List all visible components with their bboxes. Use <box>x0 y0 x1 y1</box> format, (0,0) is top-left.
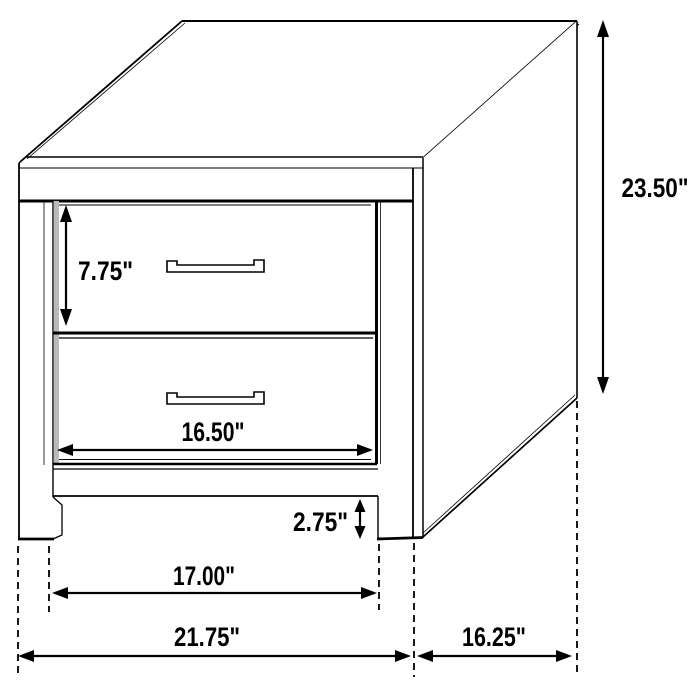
arrowhead-left <box>57 444 73 456</box>
dimension-inner-width: 17.00" <box>52 561 377 599</box>
arrowhead-right <box>395 650 411 662</box>
arrowhead-right <box>556 650 572 662</box>
arrowhead-down <box>355 526 366 539</box>
nightstand-dimension-diagram: 7.75" 23.50" 16.50" 2.75" 17.00" 21.75" <box>0 0 700 700</box>
dimension-overall-height-label: 23.50" <box>622 173 689 203</box>
arrowhead-left <box>52 587 68 599</box>
arrowhead-up <box>355 499 366 512</box>
dimension-overall-width-label: 21.75" <box>174 622 240 652</box>
arrowhead-right <box>357 444 373 456</box>
dimension-overall-width: 21.75" <box>18 622 411 662</box>
top-left-corner-bevel <box>19 157 26 163</box>
drawer-handle-icon <box>167 392 264 404</box>
dimension-depth-label: 16.25" <box>462 622 526 652</box>
dimension-drawer-height: 7.75" <box>60 205 133 326</box>
arrowhead-right <box>361 587 377 599</box>
arrowhead-left <box>417 650 433 662</box>
diagram-canvas: 7.75" 23.50" 16.50" 2.75" 17.00" 21.75" <box>0 0 700 700</box>
arrowhead-down <box>597 377 609 394</box>
right-leg-bottom <box>377 538 423 540</box>
left-leg-inner-face <box>53 497 62 539</box>
front-frame <box>19 163 413 539</box>
drawer-handle-icon <box>167 260 264 272</box>
dimension-base-clearance-label: 2.75" <box>293 507 348 537</box>
dimension-opening-width-label: 16.50" <box>182 417 245 447</box>
dimension-overall-height: 23.50" <box>597 20 689 394</box>
dimension-drawer-height-label: 7.75" <box>78 256 133 286</box>
arrowhead-up <box>60 205 72 222</box>
dimension-depth: 16.25" <box>417 622 572 662</box>
arrowhead-left <box>18 650 34 662</box>
arrowhead-down <box>60 309 72 326</box>
arrowhead-up <box>597 20 609 37</box>
dimension-inner-width-label: 17.00" <box>173 561 235 591</box>
dimension-opening-width: 16.50" <box>57 417 373 456</box>
dimension-base-clearance: 2.75" <box>293 499 366 539</box>
